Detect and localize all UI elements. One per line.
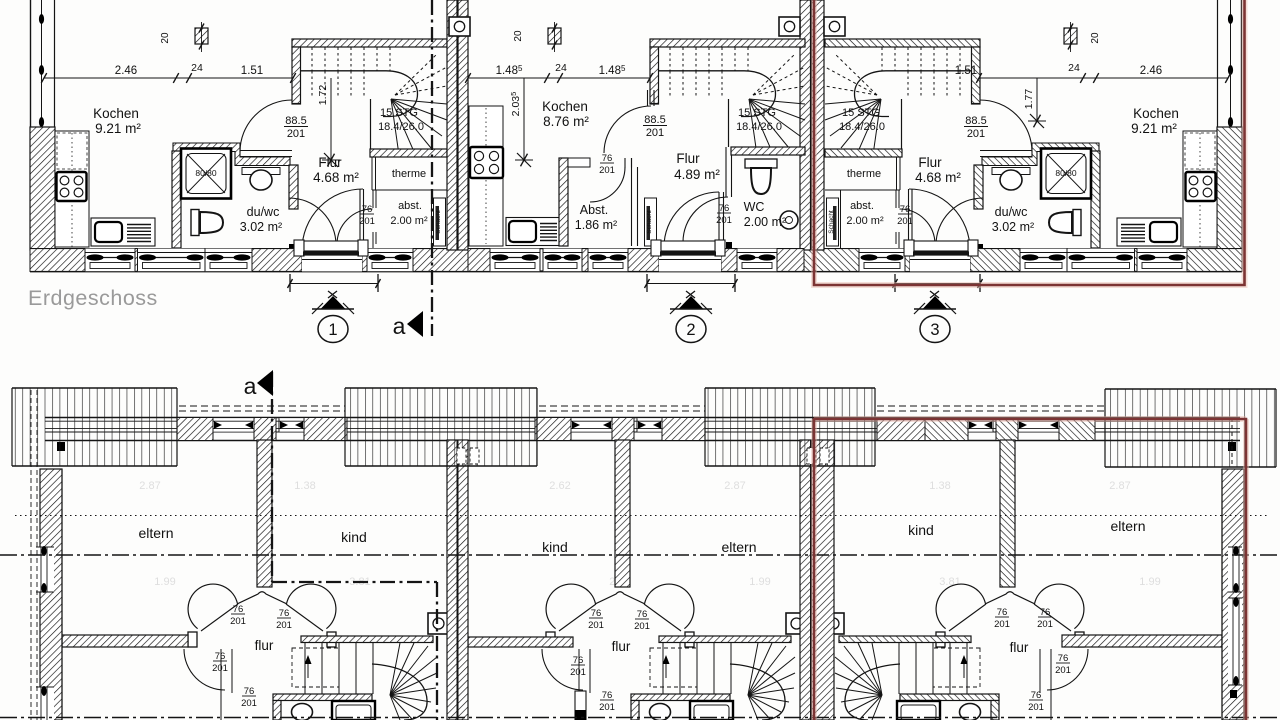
svg-text:1: 1 xyxy=(328,321,337,339)
svg-text:201: 201 xyxy=(599,165,615,176)
svg-text:1.86 m²: 1.86 m² xyxy=(575,218,617,232)
svg-text:76: 76 xyxy=(1031,690,1042,701)
svg-text:88.5: 88.5 xyxy=(965,115,986,127)
svg-text:1.99: 1.99 xyxy=(1139,576,1160,588)
svg-text:201: 201 xyxy=(897,216,913,227)
svg-text:2.62: 2.62 xyxy=(549,480,570,492)
svg-text:Schacht: Schacht xyxy=(646,210,653,234)
svg-text:Kochen: Kochen xyxy=(93,106,139,121)
svg-text:Kochen: Kochen xyxy=(542,99,588,114)
svg-text:2.87: 2.87 xyxy=(1109,480,1130,492)
svg-text:76: 76 xyxy=(602,690,613,701)
svg-text:20: 20 xyxy=(1090,32,1101,44)
svg-text:201: 201 xyxy=(967,128,985,140)
svg-text:Kochen: Kochen xyxy=(1133,106,1179,121)
svg-text:201: 201 xyxy=(599,702,615,713)
svg-text:4.68 m²: 4.68 m² xyxy=(313,170,359,185)
svg-text:24: 24 xyxy=(191,62,203,74)
svg-text:15 STG: 15 STG xyxy=(842,107,880,119)
svg-text:24: 24 xyxy=(1068,62,1080,74)
svg-text:Flur: Flur xyxy=(318,155,342,170)
svg-text:2.46: 2.46 xyxy=(1140,65,1162,77)
svg-text:a: a xyxy=(393,313,406,339)
svg-text:76: 76 xyxy=(900,204,911,215)
svg-text:WC: WC xyxy=(744,200,765,214)
svg-text:1.99: 1.99 xyxy=(154,576,175,588)
svg-text:Schacht: Schacht xyxy=(435,210,442,234)
svg-text:2.87: 2.87 xyxy=(139,480,160,492)
svg-text:201: 201 xyxy=(570,667,586,678)
svg-text:a: a xyxy=(244,373,257,399)
svg-text:9.21 m²: 9.21 m² xyxy=(95,121,141,136)
svg-text:76: 76 xyxy=(602,153,613,164)
svg-text:76: 76 xyxy=(1058,653,1069,664)
svg-text:kind: kind xyxy=(542,539,568,555)
svg-text:201: 201 xyxy=(634,621,650,632)
svg-text:therme: therme xyxy=(392,168,426,180)
svg-text:3.02 m²: 3.02 m² xyxy=(240,220,282,234)
svg-text:2.87: 2.87 xyxy=(724,480,745,492)
svg-text:abst.: abst. xyxy=(850,200,874,212)
svg-text:201: 201 xyxy=(276,620,292,631)
svg-text:abst.: abst. xyxy=(398,200,422,212)
svg-text:20: 20 xyxy=(160,32,171,44)
svg-text:76: 76 xyxy=(215,651,226,662)
svg-text:eltern: eltern xyxy=(138,525,173,541)
svg-text:201: 201 xyxy=(212,663,228,674)
svg-text:Flur: Flur xyxy=(918,155,942,170)
svg-text:1.51: 1.51 xyxy=(955,65,977,77)
svg-text:2.00 m²: 2.00 m² xyxy=(846,215,884,227)
svg-text:24: 24 xyxy=(555,62,567,74)
svg-text:kind: kind xyxy=(908,522,934,538)
svg-text:76: 76 xyxy=(362,204,373,215)
svg-text:4.68 m²: 4.68 m² xyxy=(915,170,961,185)
svg-text:flur: flur xyxy=(1010,640,1029,655)
svg-text:kind: kind xyxy=(341,529,367,545)
svg-text:88.5: 88.5 xyxy=(285,115,306,127)
svg-text:76: 76 xyxy=(244,686,255,697)
svg-text:18.4/26.0: 18.4/26.0 xyxy=(736,121,782,133)
svg-text:Schacht: Schacht xyxy=(828,210,835,234)
svg-text:76: 76 xyxy=(719,203,730,214)
svg-text:flur: flur xyxy=(612,639,631,654)
svg-text:1.51: 1.51 xyxy=(241,65,263,77)
svg-text:du/wc: du/wc xyxy=(247,205,280,219)
svg-text:20: 20 xyxy=(513,30,524,42)
svg-text:9.21 m²: 9.21 m² xyxy=(1131,121,1177,136)
svg-text:eltern: eltern xyxy=(721,539,756,555)
svg-text:201: 201 xyxy=(1028,702,1044,713)
svg-text:201: 201 xyxy=(287,128,305,140)
svg-text:4.89 m²: 4.89 m² xyxy=(674,167,720,182)
svg-text:3.02 m²: 3.02 m² xyxy=(992,220,1034,234)
svg-text:80/80: 80/80 xyxy=(195,168,217,178)
svg-text:1.77: 1.77 xyxy=(1023,89,1035,110)
svg-text:2.00 m²: 2.00 m² xyxy=(744,215,786,229)
svg-text:201: 201 xyxy=(1055,665,1071,676)
svg-text:Flur: Flur xyxy=(676,151,700,166)
svg-text:201: 201 xyxy=(716,215,732,226)
svg-text:76: 76 xyxy=(1040,607,1051,618)
svg-text:80/80: 80/80 xyxy=(1055,168,1077,178)
svg-text:201: 201 xyxy=(994,619,1010,630)
svg-text:du/wc: du/wc xyxy=(995,205,1028,219)
svg-text:76: 76 xyxy=(279,608,290,619)
svg-text:201: 201 xyxy=(646,127,664,139)
svg-text:Erdgeschoss: Erdgeschoss xyxy=(28,286,158,310)
svg-text:15 STG: 15 STG xyxy=(380,107,418,119)
svg-text:1.38: 1.38 xyxy=(929,480,950,492)
svg-text:1.99: 1.99 xyxy=(749,576,770,588)
svg-text:76: 76 xyxy=(997,607,1008,618)
svg-text:2.00 m²: 2.00 m² xyxy=(390,215,428,227)
svg-text:3: 3 xyxy=(930,321,939,339)
svg-text:flur: flur xyxy=(255,638,274,653)
svg-text:76: 76 xyxy=(233,604,244,615)
svg-text:Abst.: Abst. xyxy=(580,203,609,217)
svg-text:76: 76 xyxy=(573,655,584,666)
svg-text:1.72: 1.72 xyxy=(317,85,329,106)
svg-text:18.4/26.0: 18.4/26.0 xyxy=(378,121,424,133)
svg-text:2.46: 2.46 xyxy=(115,65,137,77)
svg-text:18.4/26.0: 18.4/26.0 xyxy=(839,121,885,133)
svg-text:1.38: 1.38 xyxy=(294,480,315,492)
svg-text:88.5: 88.5 xyxy=(644,114,665,126)
svg-text:201: 201 xyxy=(588,620,604,631)
svg-text:201: 201 xyxy=(359,216,375,227)
svg-text:76: 76 xyxy=(637,609,648,620)
svg-text:eltern: eltern xyxy=(1110,518,1145,534)
svg-text:201: 201 xyxy=(241,698,257,709)
svg-text:therme: therme xyxy=(847,168,881,180)
svg-text:8.76 m²: 8.76 m² xyxy=(543,114,589,129)
svg-text:76: 76 xyxy=(591,608,602,619)
svg-text:201: 201 xyxy=(230,616,246,627)
svg-text:15 STG: 15 STG xyxy=(738,107,776,119)
svg-text:201: 201 xyxy=(1037,619,1053,630)
svg-text:2: 2 xyxy=(686,321,695,339)
